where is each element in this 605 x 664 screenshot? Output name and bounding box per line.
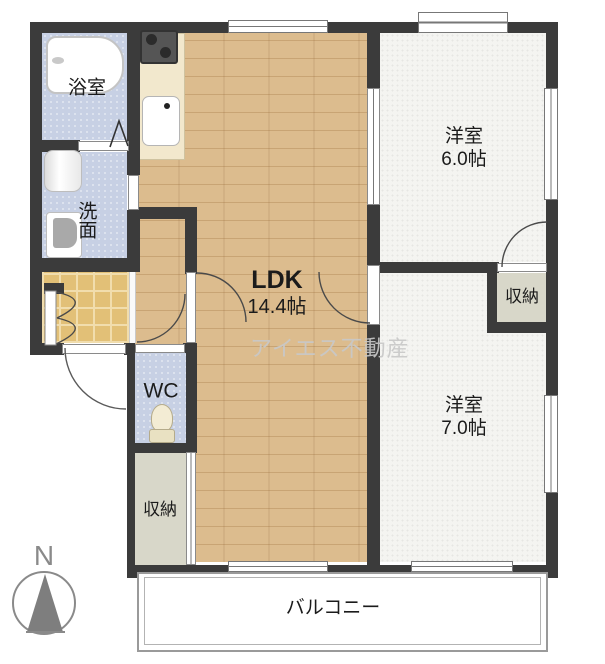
bedroom-north-size: 6.0帖 [441, 149, 486, 172]
bedroom-south-name: 洋室 [441, 395, 486, 418]
wall [44, 283, 64, 294]
north-arrow-triangle [27, 574, 63, 632]
washing-machine-icon [44, 150, 82, 192]
washroom-door-opening [128, 175, 139, 210]
toilet-tank-icon [149, 429, 175, 443]
north-label: N [34, 540, 54, 572]
storage-left-label: 収納 [143, 500, 177, 520]
washroom-label: 洗面 [74, 201, 97, 239]
ldk-label: LDK 14.4帖 [248, 265, 307, 319]
window [411, 561, 513, 572]
wall [42, 258, 130, 272]
wall [487, 322, 558, 333]
stove-burner-icon [160, 47, 171, 58]
bath-label: 浴室 [68, 78, 106, 101]
window [544, 395, 558, 493]
kitchen-sink-drain-icon [164, 103, 170, 109]
ldk-size: 14.4帖 [248, 295, 307, 319]
ldk-door-opening [186, 272, 196, 343]
wall [367, 22, 380, 92]
wall [30, 343, 64, 355]
wall [186, 352, 197, 452]
bedroom-north-name: 洋室 [441, 126, 486, 149]
wall [367, 203, 380, 267]
stove-burner-icon [146, 34, 157, 45]
wall [135, 207, 197, 219]
window [228, 561, 328, 572]
storage-left-sliding-door [186, 452, 196, 565]
toilet-bowl-icon [151, 404, 173, 432]
kitchen-sink-icon [142, 96, 180, 146]
window [228, 20, 328, 33]
bedroom-south-size: 7.0帖 [441, 418, 486, 441]
ldk-name: LDK [248, 265, 307, 295]
wall [185, 219, 197, 274]
storage-right-label: 収納 [505, 287, 539, 307]
wc-door-opening [135, 344, 185, 353]
floorplan-canvas: 浴室 洗面 WC 収納 収納 LDK 14.4帖 洋室 6.0帖 洋室 7.0帖… [0, 0, 605, 664]
front-door-swing-arc [65, 348, 126, 409]
balcony-label: バルコニー [286, 598, 381, 621]
window [418, 12, 508, 33]
bedroom-north-label: 洋室 6.0帖 [441, 126, 486, 172]
bathtub-faucet-icon [52, 57, 64, 64]
entrance-step [129, 272, 136, 343]
storage-right-door-opening [497, 263, 547, 272]
wall [127, 33, 140, 175]
window [544, 88, 558, 200]
north-arrow-base-line [26, 631, 65, 633]
watermark-text: アイエス不動産 [250, 331, 410, 363]
bath-door-opening [78, 141, 129, 151]
bedroom-south-door-opening [367, 265, 380, 325]
bedroom-south-label: 洋室 7.0帖 [441, 395, 486, 441]
wall [127, 343, 135, 578]
wall [367, 262, 499, 273]
front-door-opening [62, 344, 126, 354]
wc-label: WC [144, 378, 179, 403]
stove-icon [140, 30, 178, 64]
ldk-bedroom-sliding-door [367, 88, 380, 205]
wall [30, 22, 42, 355]
